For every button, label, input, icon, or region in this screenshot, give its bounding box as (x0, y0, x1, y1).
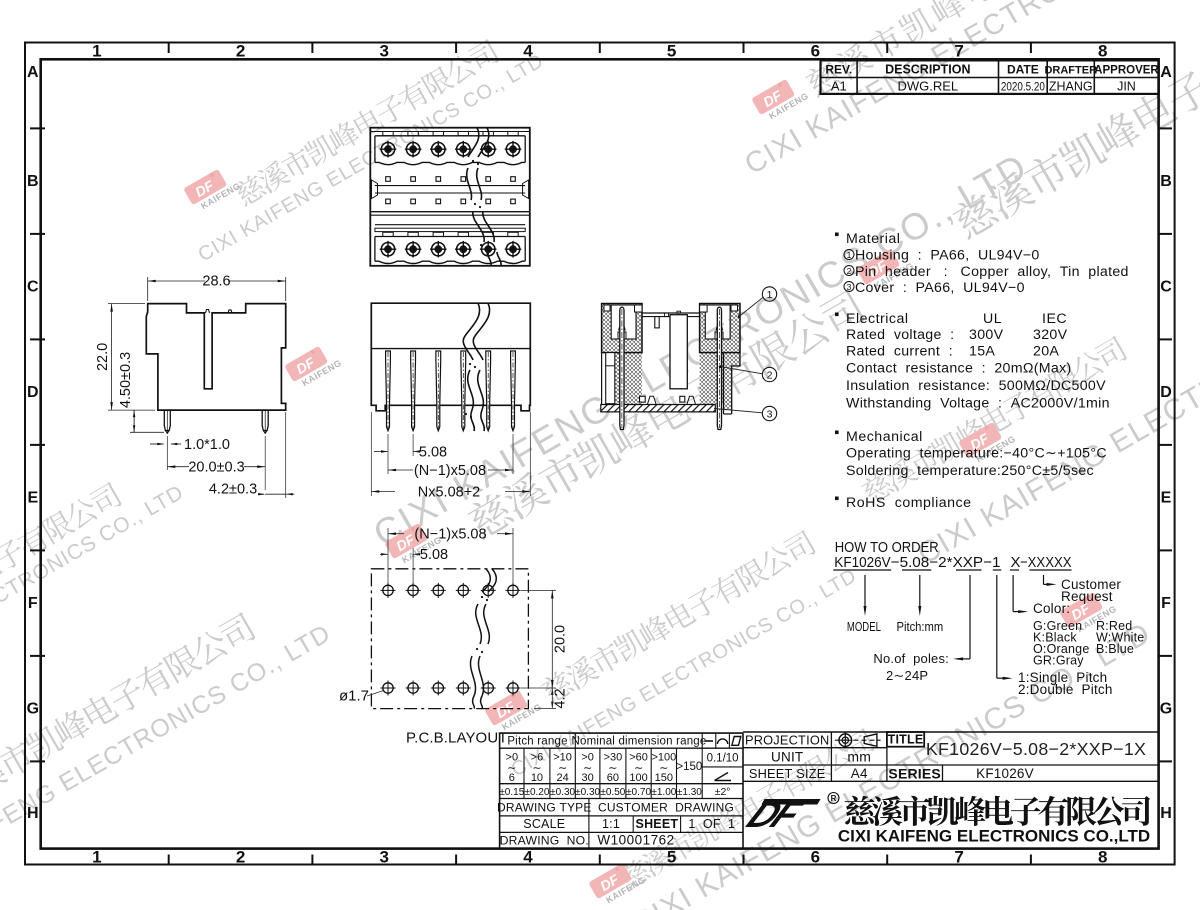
svg-text:A1: A1 (831, 79, 847, 94)
svg-text:KF1026V−5.08−2*XXP−1X: KF1026V−5.08−2*XXP−1X (926, 739, 1146, 759)
svg-text:3: 3 (380, 42, 389, 61)
svg-text:ø1.7: ø1.7 (339, 688, 369, 705)
svg-text:±1.30: ±1.30 (677, 787, 702, 798)
svg-text:JIN: JIN (1117, 80, 1136, 94)
svg-text:±0.30: ±0.30 (550, 787, 575, 798)
svg-text:6: 6 (509, 772, 515, 784)
svg-text:Rated voltage :: Rated voltage : (846, 327, 954, 343)
svg-text:3: 3 (380, 848, 389, 867)
svg-text:8: 8 (1098, 42, 1107, 61)
svg-text:DRAWING NO.: DRAWING NO. (500, 834, 589, 848)
svg-text:1 OF 1: 1 OF 1 (688, 817, 735, 831)
svg-text:−XXXXX: −XXXXX (1020, 554, 1072, 571)
svg-text:2∼24P: 2∼24P (886, 668, 928, 683)
svg-text:C: C (27, 279, 39, 296)
svg-text:6: 6 (811, 848, 820, 867)
svg-text:7: 7 (954, 42, 963, 61)
svg-text:B: B (1160, 173, 1172, 190)
svg-text:Operating temperature:−40°C∼+: Operating temperature:−40°C∼+105°C (846, 446, 1107, 462)
svg-text:5: 5 (667, 848, 676, 867)
svg-text:DRAFTER: DRAFTER (1044, 65, 1097, 77)
svg-text:KF1026V: KF1026V (834, 554, 890, 571)
svg-text:2020.5.20: 2020.5.20 (1001, 82, 1045, 94)
svg-text:20.0±0.3: 20.0±0.3 (188, 460, 244, 476)
svg-text:SHEET SIZE: SHEET SIZE (749, 766, 826, 781)
svg-text:KF1026V: KF1026V (976, 766, 1034, 781)
svg-text:Pin header : Copper allo: Pin header : Copper alloy, Tin plated (855, 264, 1129, 280)
svg-text:SHEET: SHEET (636, 817, 679, 831)
svg-text:RoHS compliance: RoHS compliance (846, 495, 972, 511)
svg-text:±0.20: ±0.20 (524, 787, 549, 798)
svg-text:8: 8 (1098, 848, 1107, 867)
svg-text:7: 7 (954, 848, 963, 867)
svg-text:1: 1 (847, 250, 852, 260)
svg-text:Soldering temperature:250°C±5: Soldering temperature:250°C±5/5sec (846, 463, 1094, 479)
svg-text:APPROVER: APPROVER (1094, 65, 1159, 77)
svg-text:4.50±0.3: 4.50±0.3 (118, 352, 134, 408)
svg-text:5.08: 5.08 (420, 547, 448, 563)
svg-text:MODEL: MODEL (847, 619, 881, 634)
svg-text:DWG.REL: DWG.REL (897, 79, 958, 94)
svg-text:3: 3 (847, 282, 852, 292)
svg-text:3: 3 (767, 409, 773, 421)
svg-text:ZHANG: ZHANG (1049, 80, 1093, 94)
svg-text:CIXI KAIFENG ELECTRONICS CO.,L: CIXI KAIFENG ELECTRONICS CO.,LTD (838, 827, 1150, 846)
svg-text:1: 1 (92, 42, 101, 61)
svg-text:100: 100 (629, 772, 647, 784)
svg-text:A: A (1160, 64, 1172, 81)
svg-text:28.6: 28.6 (202, 274, 230, 290)
svg-text:W10001762: W10001762 (597, 833, 674, 848)
svg-text:2: 2 (236, 848, 245, 867)
svg-text:±2°: ±2° (715, 786, 731, 798)
svg-text:C: C (1160, 279, 1172, 296)
svg-text:2: 2 (847, 266, 852, 276)
svg-text:H: H (1160, 805, 1172, 822)
svg-text:5: 5 (667, 42, 676, 61)
svg-text:B:Blue: B:Blue (1096, 642, 1134, 656)
svg-text:2: 2 (236, 42, 245, 61)
svg-text:4: 4 (523, 848, 533, 867)
svg-text:UL: UL (983, 311, 1002, 327)
svg-text:Material: Material (846, 231, 900, 247)
svg-text:Mechanical: Mechanical (846, 429, 923, 445)
svg-text:CUSTOMER DRAWING: CUSTOMER DRAWING (598, 801, 734, 815)
svg-text:±0.50: ±0.50 (600, 787, 625, 798)
svg-text:mm: mm (847, 749, 871, 765)
svg-text:1: 1 (92, 848, 101, 867)
svg-text:SCALE: SCALE (523, 817, 565, 831)
svg-text:Request: Request (1061, 589, 1113, 604)
svg-text:>150: >150 (676, 761, 702, 773)
svg-text:DATE: DATE (1007, 63, 1039, 77)
svg-text:1.0*1.0: 1.0*1.0 (184, 437, 230, 453)
svg-text:30: 30 (581, 772, 593, 784)
svg-text:±0.15: ±0.15 (499, 787, 524, 798)
svg-text:DESCRIPTION: DESCRIPTION (885, 63, 970, 77)
svg-text:Housing : PA66, UL94V−0: Housing : PA66, UL94V−0 (855, 248, 1040, 264)
svg-text:PROJECTION: PROJECTION (745, 733, 829, 748)
svg-text:4.2: 4.2 (553, 688, 569, 708)
svg-text:E: E (27, 490, 38, 507)
svg-text:F: F (1161, 595, 1171, 612)
svg-text:DRAWING TYPE: DRAWING TYPE (497, 801, 592, 815)
svg-text:2:Double Pitch: 2:Double Pitch (1018, 682, 1113, 697)
svg-text:(N−1)x5.08: (N−1)x5.08 (414, 463, 486, 479)
svg-text:A4: A4 (851, 766, 868, 781)
svg-text:22.0: 22.0 (95, 343, 111, 371)
svg-text:24: 24 (556, 772, 568, 784)
svg-text:SERIES: SERIES (888, 766, 941, 782)
svg-text:REV.: REV. (825, 63, 852, 77)
svg-text:B: B (27, 173, 39, 190)
svg-text:Withstanding Voltage : AC20: Withstanding Voltage : AC2000V/1min (846, 396, 1110, 412)
svg-text:X: X (1011, 554, 1021, 571)
svg-text:1: 1 (767, 289, 773, 301)
svg-text:−5.08−2*XXP−1: −5.08−2*XXP−1 (891, 554, 1001, 571)
svg-text:6: 6 (811, 42, 820, 61)
svg-text:TITLE: TITLE (888, 733, 924, 747)
svg-text:0.1/10: 0.1/10 (707, 753, 739, 765)
svg-text:D: D (27, 384, 39, 401)
svg-text:F: F (28, 595, 38, 612)
svg-text:5.08: 5.08 (419, 444, 447, 460)
svg-text:Pitch range: Pitch range (507, 736, 567, 748)
svg-text:(N−1)x5.08: (N−1)x5.08 (414, 527, 486, 543)
svg-text:GR:Gray: GR:Gray (1033, 654, 1084, 668)
svg-text:G: G (27, 701, 39, 718)
svg-text:60: 60 (607, 772, 619, 784)
svg-text:150: 150 (655, 772, 673, 784)
svg-text:±0.30: ±0.30 (575, 787, 600, 798)
svg-text:Pitch:mm: Pitch:mm (897, 619, 944, 634)
svg-text:A: A (27, 64, 39, 81)
svg-text:Contact resistance : 20mΩ(M: Contact resistance : 20mΩ(Max) (846, 361, 1072, 377)
svg-text:300V: 300V (969, 327, 1004, 343)
svg-text:Nx5.08+2: Nx5.08+2 (418, 484, 480, 500)
svg-text:Rated current :: Rated current : (846, 344, 953, 360)
svg-text:IEC: IEC (1042, 311, 1067, 327)
svg-text:Electrical: Electrical (846, 311, 909, 327)
svg-text:20.0: 20.0 (553, 625, 569, 653)
svg-text:G: G (1160, 701, 1172, 718)
svg-text:±1.00: ±1.00 (651, 787, 676, 798)
svg-text:Cover : PA66, UL94V−0: Cover : PA66, UL94V−0 (855, 280, 1025, 296)
svg-text:D: D (1160, 384, 1172, 401)
svg-text:P.C.B.LAYOUT: P.C.B.LAYOUT (406, 730, 508, 747)
svg-text:15A: 15A (969, 344, 995, 360)
svg-text:UNIT: UNIT (771, 750, 803, 765)
svg-text:20A: 20A (1033, 344, 1059, 360)
svg-text:R: R (831, 794, 837, 803)
svg-text:4: 4 (523, 42, 533, 61)
svg-text:2: 2 (767, 370, 773, 382)
svg-text:320V: 320V (1033, 327, 1068, 343)
svg-text:Insulation resistance: 500MΩ: Insulation resistance: 500MΩ/DC500V (846, 378, 1106, 394)
svg-text:No.of poles:: No.of poles: (873, 651, 949, 666)
svg-text:Nominal dimension range: Nominal dimension range (571, 736, 706, 748)
svg-text:±0.70: ±0.70 (626, 787, 651, 798)
svg-text:10: 10 (531, 772, 543, 784)
svg-text:E: E (1161, 490, 1172, 507)
svg-text:4.2±0.3: 4.2±0.3 (209, 482, 257, 498)
svg-text:1:1: 1:1 (602, 817, 620, 831)
svg-text:H: H (27, 805, 39, 822)
